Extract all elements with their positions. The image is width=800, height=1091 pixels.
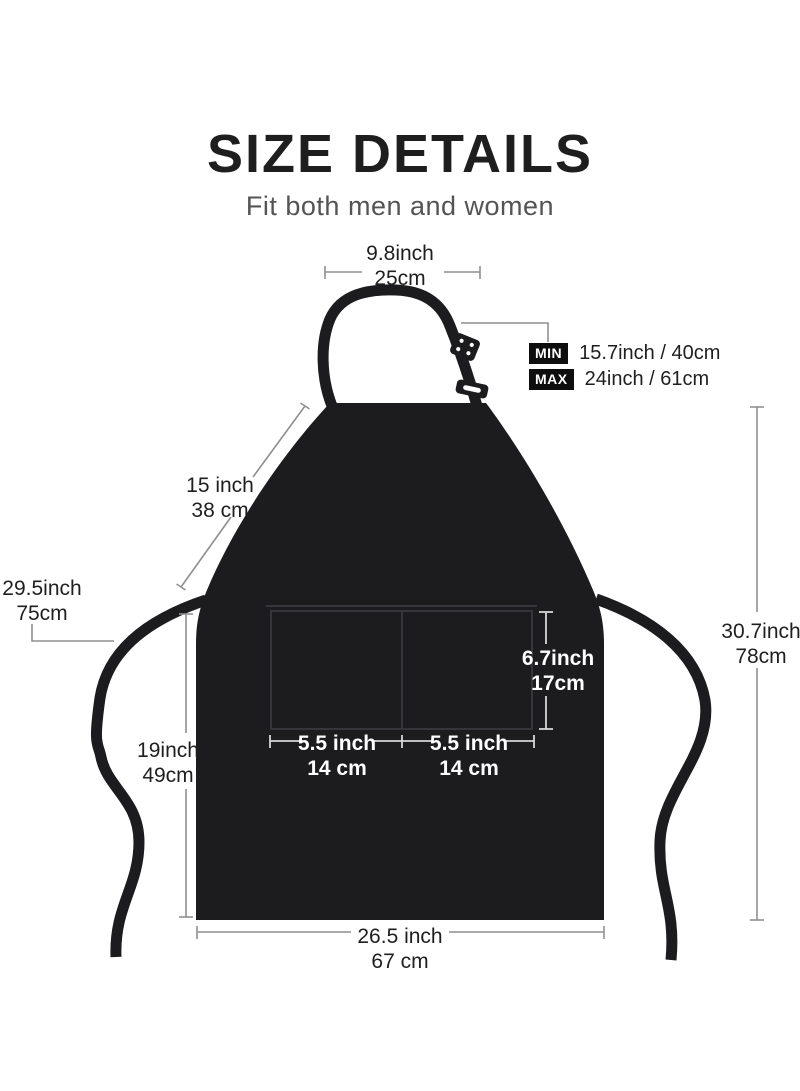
strap-slider (455, 379, 489, 399)
strap-max-value: 24inch / 61cm (585, 368, 710, 391)
skirt-height-cm: 49cm (128, 763, 208, 788)
total-height-label: 30.7inch 78cm (721, 619, 800, 669)
pocket-height-label: 6.7inch 17cm (518, 646, 598, 696)
min-badge: MIN (529, 343, 568, 364)
neck-width-label: 9.8inch 25cm (330, 241, 470, 291)
pocket-right-width-label: 5.5 inch 14 cm (419, 731, 519, 781)
strap-max-row: MAX 24inch / 61cm (529, 368, 709, 390)
pocket-right-inch: 5.5 inch (419, 731, 519, 756)
right-tie-strap (596, 599, 706, 960)
pocket-height-cm: 17cm (518, 671, 598, 696)
pocket-left-width-label: 5.5 inch 14 cm (287, 731, 387, 781)
waist-tie-inch: 29.5inch (0, 576, 84, 601)
bottom-width-inch: 26.5 inch (330, 924, 470, 949)
pocket-height-inch: 6.7inch (518, 646, 598, 671)
size-details-diagram: SIZE DETAILS Fit both men and women (0, 0, 800, 1091)
strap-min-row: MIN 15.7inch / 40cm (529, 342, 720, 364)
tie-leader-line (32, 624, 114, 641)
waist-tie-cm: 75cm (0, 601, 84, 626)
max-badge: MAX (529, 369, 574, 390)
bottom-width-label: 26.5 inch 67 cm (330, 924, 470, 974)
total-height-inch: 30.7inch (721, 619, 800, 644)
bib-diagonal-inch: 15 inch (160, 473, 280, 498)
pocket-left-inch: 5.5 inch (287, 731, 387, 756)
bib-diagonal-cm: 38 cm (160, 498, 280, 523)
strap-min-value: 15.7inch / 40cm (579, 342, 720, 365)
waist-tie-label: 29.5inch 75cm (0, 576, 84, 626)
neck-width-inch: 9.8inch (330, 241, 470, 266)
total-height-cm: 78cm (721, 644, 800, 669)
bottom-width-cm: 67 cm (330, 949, 470, 974)
pocket-right-cm: 14 cm (419, 756, 519, 781)
skirt-height-label: 19inch 49cm (128, 738, 208, 788)
bib-diagonal-label: 15 inch 38 cm (160, 473, 280, 523)
skirt-height-inch: 19inch (128, 738, 208, 763)
pocket-left-cm: 14 cm (287, 756, 387, 781)
neck-width-cm: 25cm (330, 266, 470, 291)
